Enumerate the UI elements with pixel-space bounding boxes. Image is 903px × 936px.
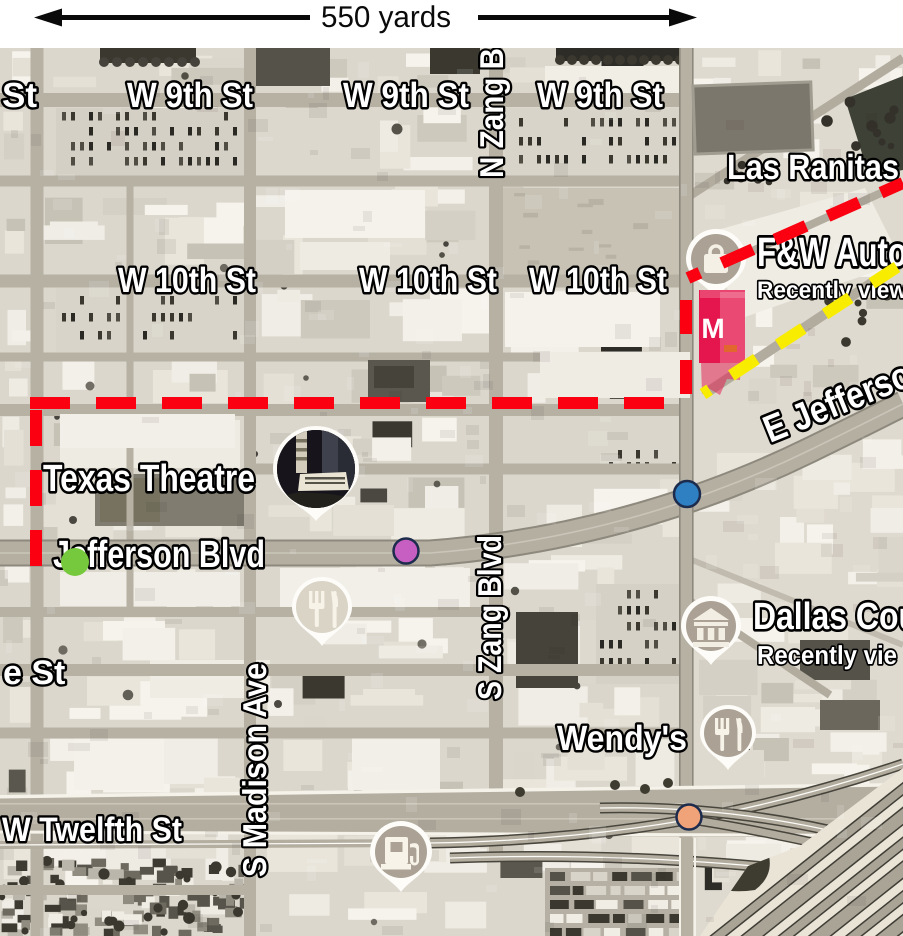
svg-text:Texas Theatre: Texas Theatre [43, 458, 255, 500]
svg-text:W 10th St: W 10th St [359, 261, 497, 300]
svg-text:W 10th St: W 10th St [118, 261, 256, 300]
svg-text:W 10th St: W 10th St [529, 261, 667, 300]
svg-text:W Twelfth St: W Twelfth St [2, 811, 182, 849]
svg-text:S Madison Ave: S Madison Ave [236, 663, 273, 877]
svg-text:M: M [701, 313, 724, 344]
svg-text:Las Ranitas: Las Ranitas [727, 148, 899, 187]
svg-text:e St: e St [3, 654, 65, 692]
svg-text:N Zang B: N Zang B [473, 48, 510, 178]
svg-text:W 9th St: W 9th St [127, 76, 253, 115]
svg-text:Recently vie: Recently vie [757, 640, 897, 670]
svg-text:550 yards: 550 yards [321, 1, 451, 34]
svg-text:S Zang Blvd: S Zang Blvd [471, 535, 508, 700]
svg-text:Dallas Cou: Dallas Cou [753, 596, 903, 638]
svg-text:St: St [2, 76, 37, 115]
svg-text:W 9th St: W 9th St [537, 76, 663, 115]
svg-text:W 9th St: W 9th St [343, 76, 469, 115]
svg-text:Wendy's: Wendy's [557, 719, 687, 758]
